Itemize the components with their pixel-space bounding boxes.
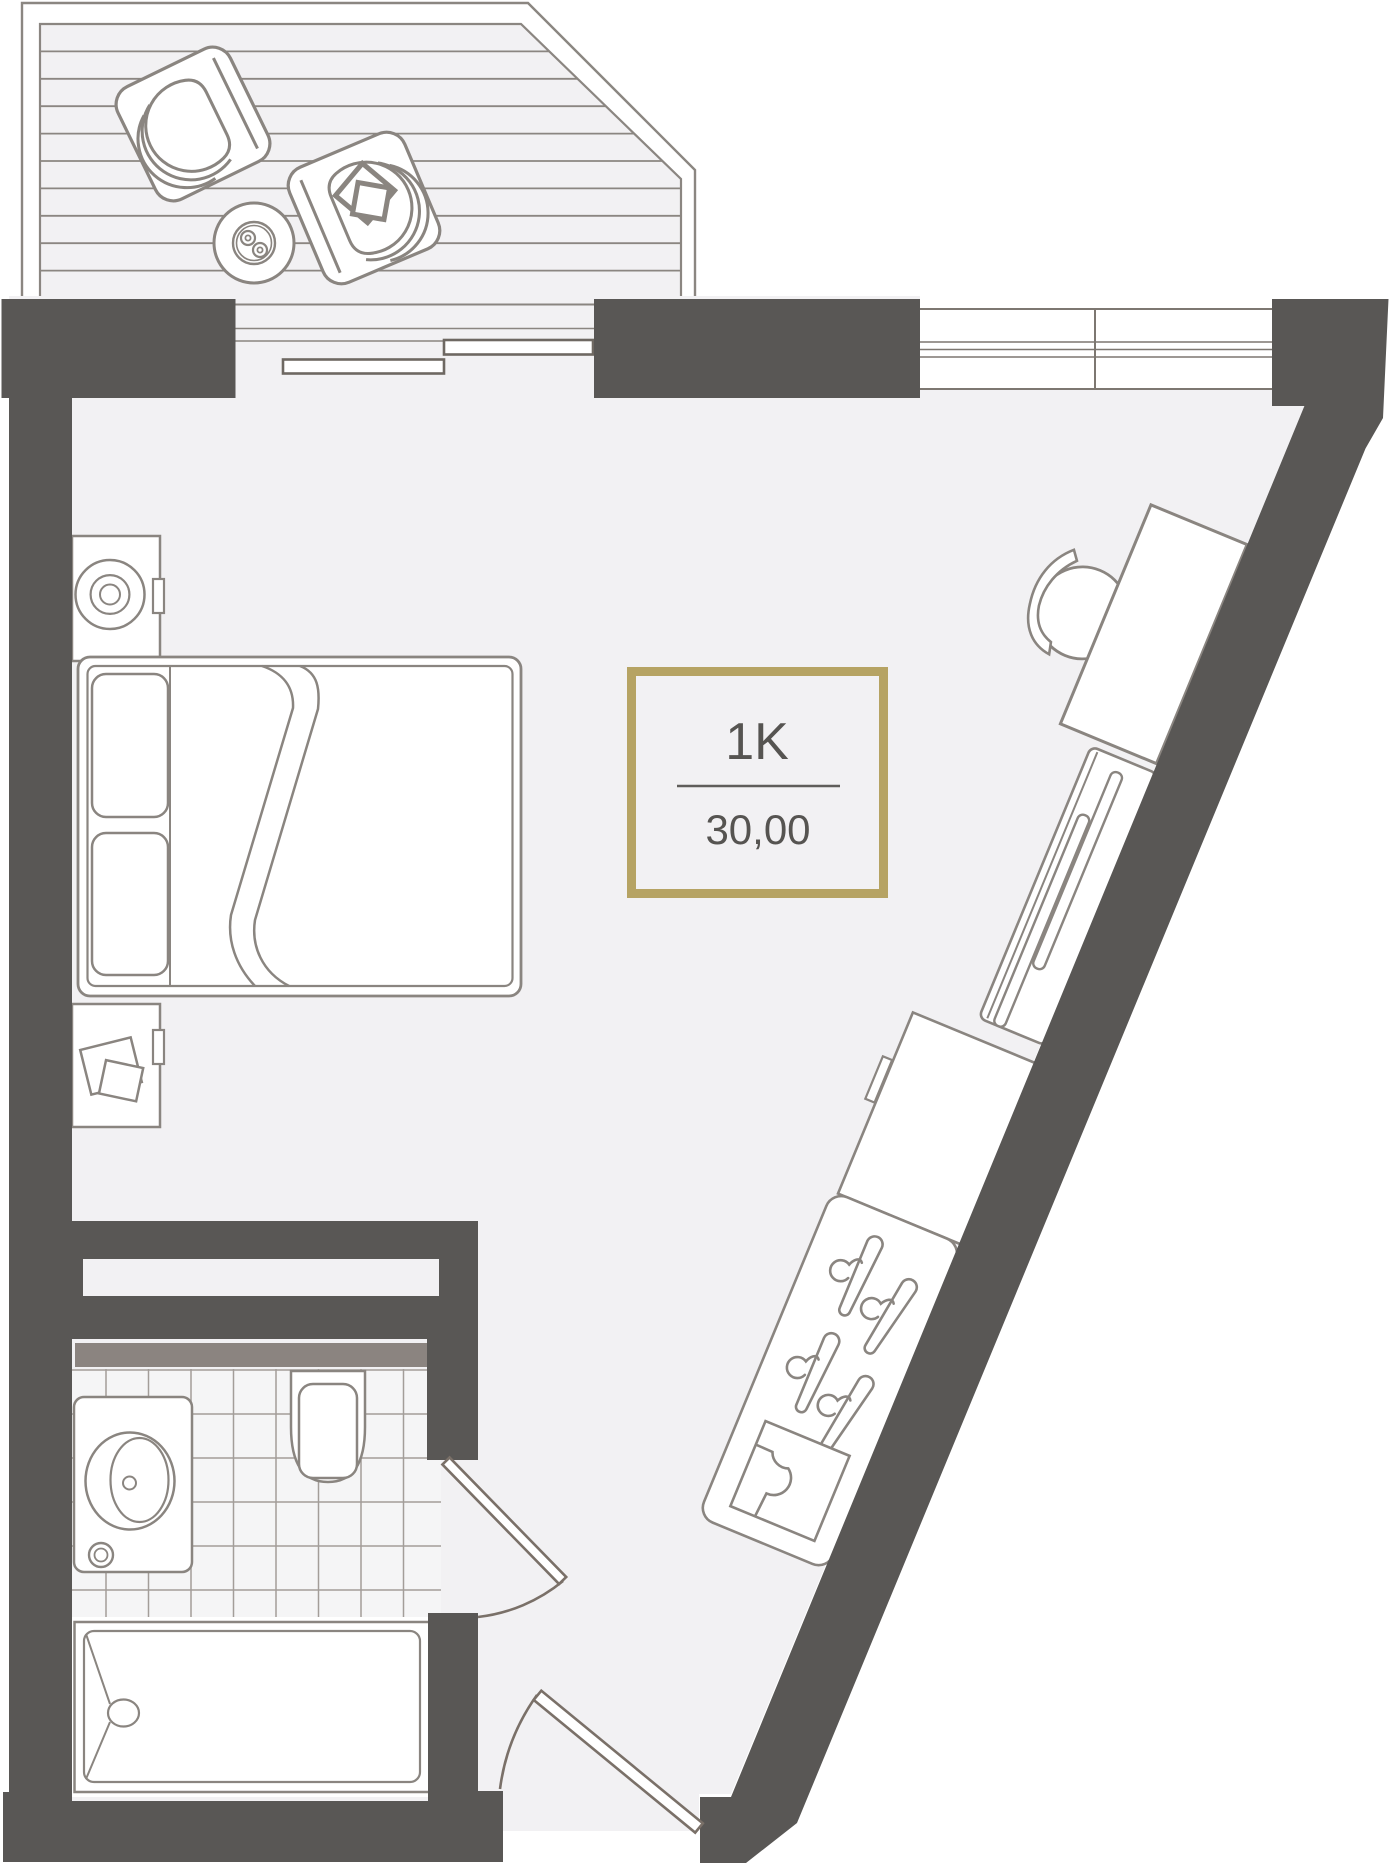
svg-text:1K: 1K — [725, 713, 789, 771]
svg-text:30,00: 30,00 — [705, 806, 810, 853]
